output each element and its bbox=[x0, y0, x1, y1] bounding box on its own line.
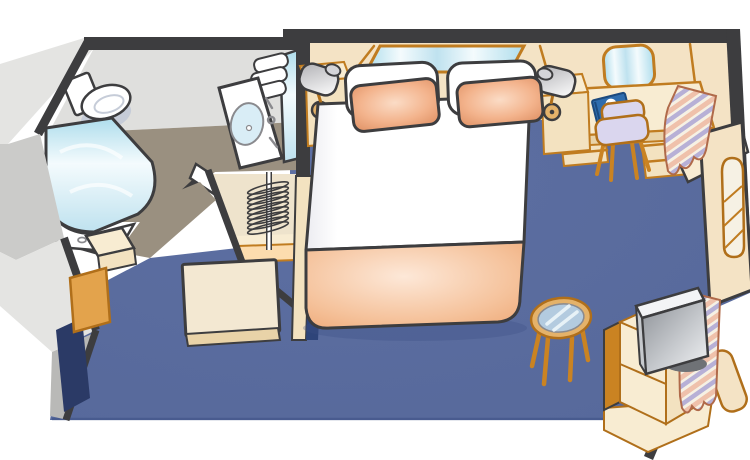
door-leaf bbox=[182, 260, 280, 337]
top-wall bbox=[283, 29, 732, 43]
desk-mirror bbox=[603, 44, 656, 89]
sink-drain bbox=[247, 126, 252, 131]
bathroom-top-wall bbox=[84, 37, 298, 50]
stateroom-floorplan bbox=[0, 0, 750, 460]
floorplan-canvas bbox=[0, 0, 750, 460]
arched-window bbox=[722, 158, 744, 257]
cabinet-lower-front bbox=[70, 268, 110, 332]
cushion bbox=[456, 76, 544, 127]
bed bbox=[303, 60, 544, 341]
entry-door bbox=[182, 260, 280, 346]
chair-seat bbox=[595, 114, 650, 146]
cushion bbox=[350, 78, 440, 133]
lamp-base-center bbox=[550, 110, 555, 115]
folded-blanket bbox=[306, 242, 524, 328]
cabinet-side-orange bbox=[604, 322, 620, 410]
